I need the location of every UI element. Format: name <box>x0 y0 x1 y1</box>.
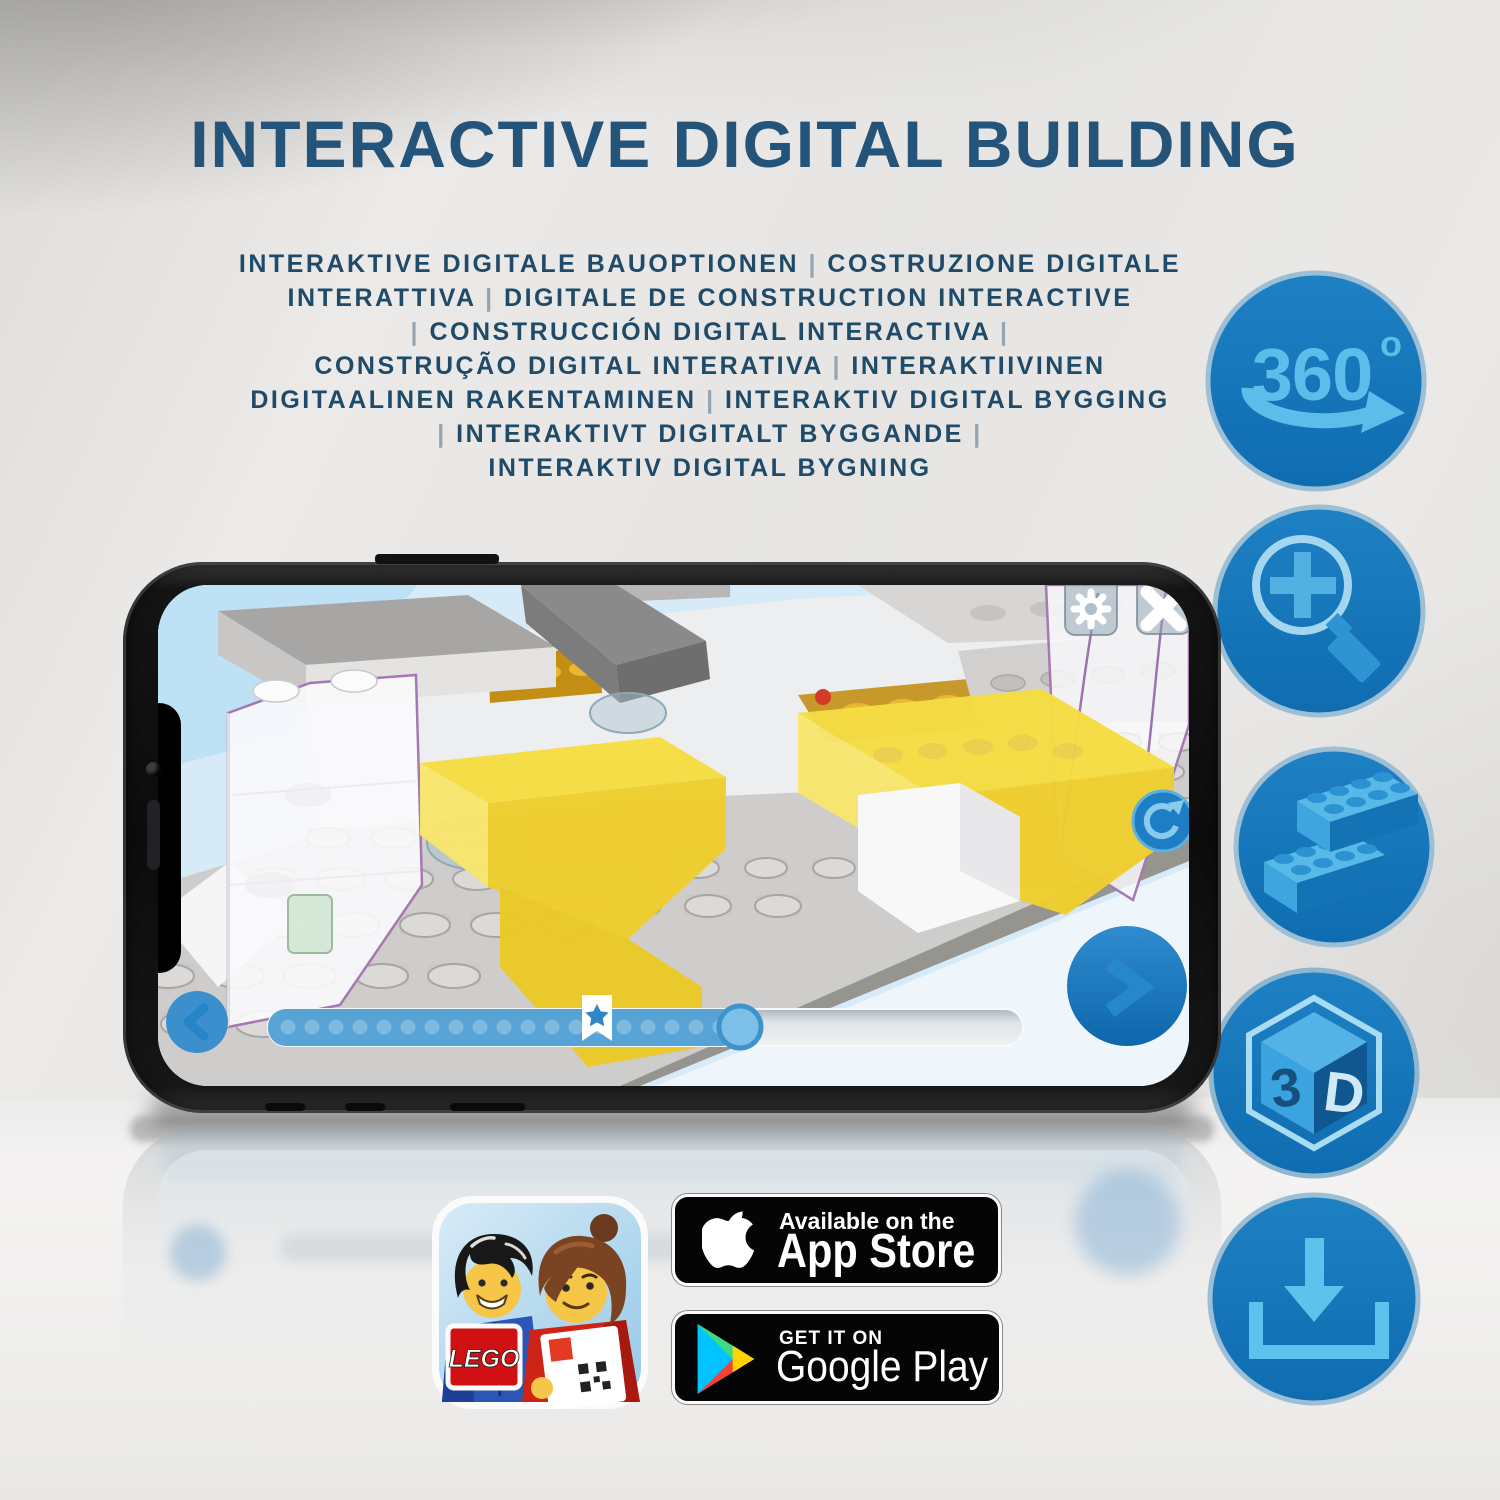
svg-text:LEGO: LEGO <box>449 1345 520 1373</box>
svg-text:D: D <box>1320 1059 1368 1126</box>
svg-text:o: o <box>1380 323 1402 364</box>
